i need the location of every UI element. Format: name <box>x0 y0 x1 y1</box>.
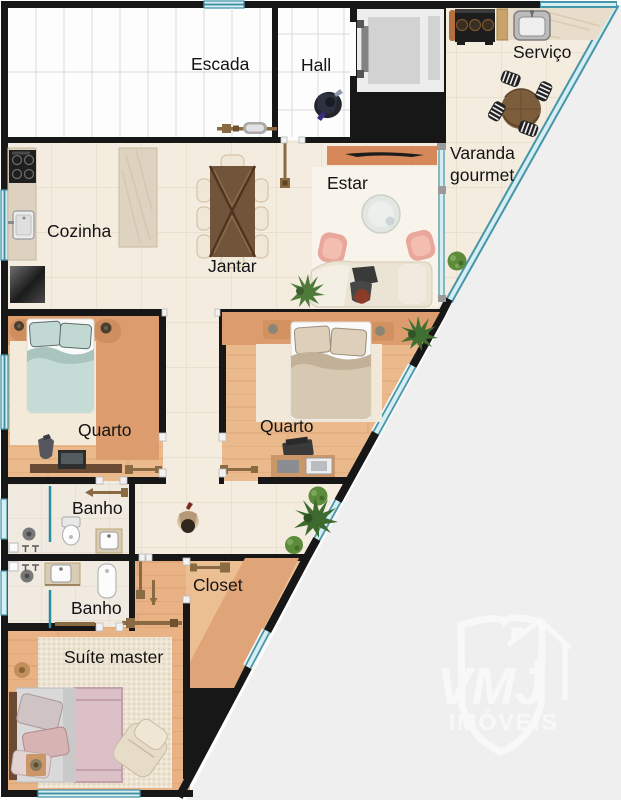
svg-text:Quarto: Quarto <box>78 420 132 440</box>
svg-text:Estar: Estar <box>327 173 368 193</box>
svg-text:Jantar: Jantar <box>208 256 257 276</box>
svg-text:Escada: Escada <box>191 54 250 74</box>
svg-text:Hall: Hall <box>301 55 331 75</box>
svg-text:gourmet: gourmet <box>450 165 514 185</box>
svg-text:IMÓVEIS: IMÓVEIS <box>449 708 559 735</box>
svg-text:Varanda: Varanda <box>450 143 515 163</box>
svg-text:Serviço: Serviço <box>513 42 571 62</box>
svg-text:Suíte master: Suíte master <box>64 647 163 667</box>
svg-text:Banho: Banho <box>71 598 122 618</box>
svg-text:Cozinha: Cozinha <box>47 221 111 241</box>
svg-text:Closet: Closet <box>193 575 243 595</box>
svg-text:Quarto: Quarto <box>260 416 314 436</box>
svg-text:Banho: Banho <box>72 498 123 518</box>
svg-text:VMJ: VMJ <box>437 658 545 716</box>
